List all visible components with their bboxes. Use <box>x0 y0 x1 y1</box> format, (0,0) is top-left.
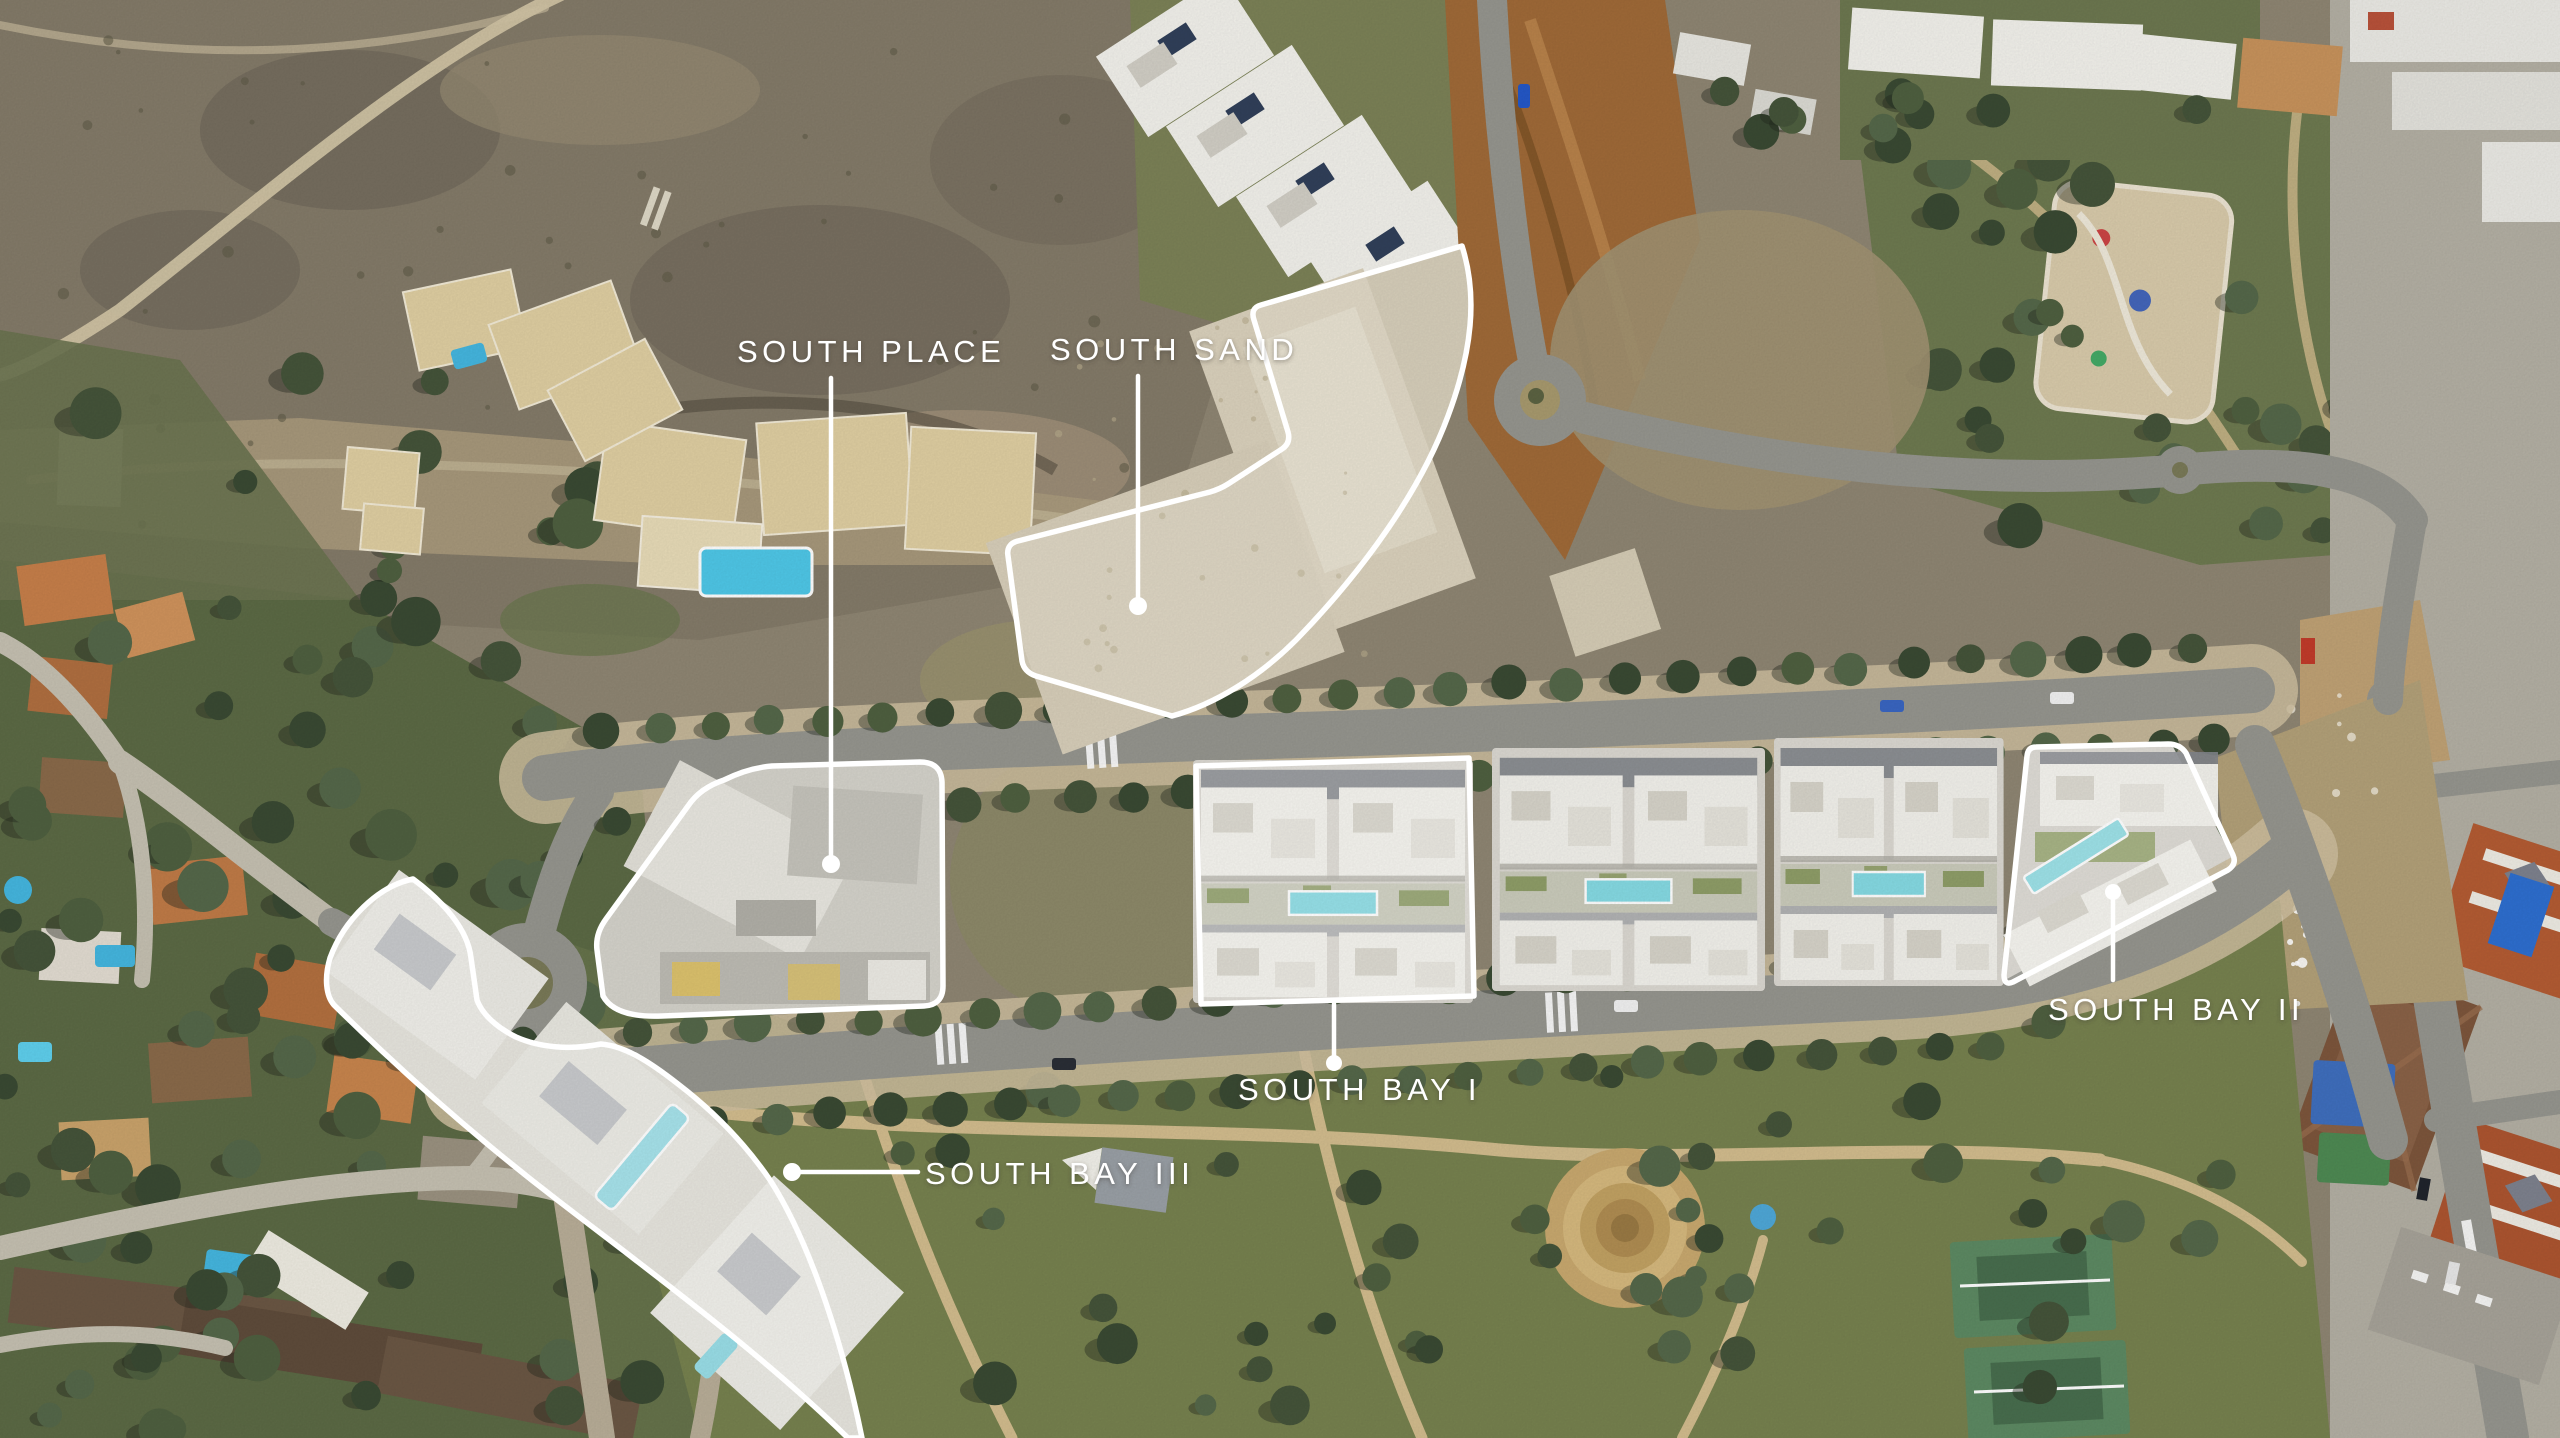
grain-texture <box>0 0 2560 1438</box>
plot-outline-south-bay-1[interactable] <box>1196 758 1474 1004</box>
aerial-map-canvas: SOUTH PLACE SOUTH SAND SOUTH BAY I SOUTH… <box>0 0 2560 1438</box>
label-south-place[interactable]: SOUTH PLACE <box>737 334 1005 369</box>
label-south-bay-3[interactable]: SOUTH BAY III <box>925 1156 1194 1191</box>
label-south-bay-1[interactable]: SOUTH BAY I <box>1238 1072 1481 1107</box>
label-south-bay-2[interactable]: SOUTH BAY II <box>2048 992 2304 1027</box>
aerial-site-plan: SOUTH PLACE SOUTH SAND SOUTH BAY I SOUTH… <box>0 0 2560 1438</box>
label-south-sand[interactable]: SOUTH SAND <box>1050 332 1298 367</box>
